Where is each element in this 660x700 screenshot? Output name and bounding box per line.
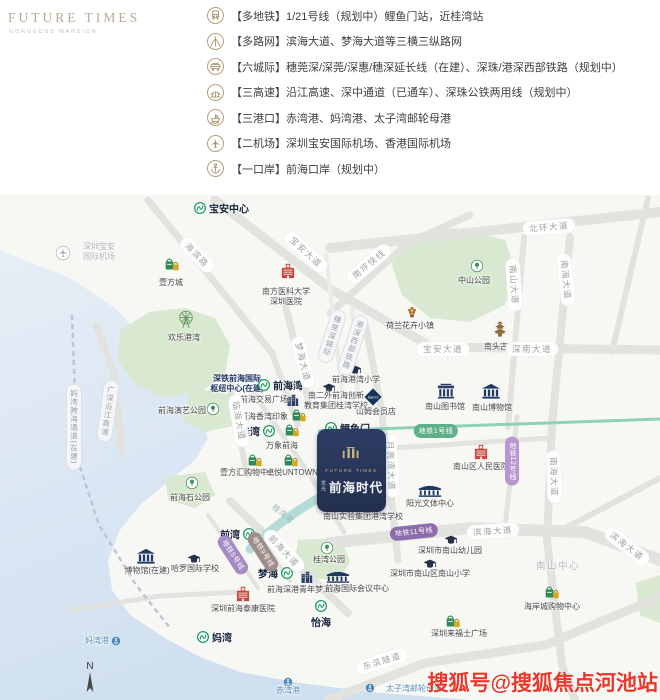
- legend: 【多地铁】1/21号线（规划中）鲤鱼门站，近桂湾站【多路网】滨海大道、梦海大道等…: [207, 7, 623, 177]
- port-icon: [207, 109, 224, 126]
- legend-text-1: 【多路网】滨海大道、梦海大道等三横三纵路网: [231, 33, 462, 49]
- legend-text-5: 【二机场】深圳宝安国际机场、香港国际机场: [231, 135, 451, 151]
- legend-text-0: 【多地铁】1/21号线（规划中）鲤鱼门站，近桂湾站: [231, 8, 483, 24]
- project-brand-en: FUTURE TIMES: [325, 468, 377, 473]
- watermark: 搜狐号@搜狐焦点河池站: [428, 667, 658, 697]
- project-prefix: 龙光: [320, 480, 327, 492]
- project-name: 前海时代: [329, 477, 383, 496]
- legend-item-2: 【六城际】穗莞深/深莞/深惠/穗深延长线（在建）、深珠/港深西部铁路（规划中）: [207, 58, 623, 75]
- intercity-rail-icon: [207, 58, 224, 75]
- page: FUTURE TIMES GORGEOUS MANSION 【多地铁】1/21号…: [0, 0, 660, 700]
- legend-item-0: 【多地铁】1/21号线（规划中）鲤鱼门站，近桂湾站: [207, 7, 623, 24]
- legend-text-3: 【三高速】沿江高速、深中通道（已通车）、深珠公铁两用线（规划中）: [231, 84, 578, 100]
- legend-item-5: 【二机场】深圳宝安国际机场、香港国际机场: [207, 135, 623, 152]
- legend-text-4: 【三港口】赤湾港、妈湾港、太子湾邮轮母港: [231, 110, 451, 126]
- airplane-icon: [207, 135, 224, 152]
- anchor-icon: [207, 160, 224, 177]
- brand-subtitle: GORGEOUS MANSION: [8, 29, 140, 35]
- compass-needle-icon: [85, 672, 95, 694]
- compass: N: [82, 662, 98, 697]
- brand-logo: FUTURE TIMES GORGEOUS MANSION: [8, 10, 140, 35]
- legend-text-2: 【六城际】穗莞深/深莞/深惠/穗深延长线（在建）、深珠/港深西部铁路（规划中）: [231, 59, 623, 75]
- compass-n-label: N: [82, 662, 98, 672]
- project-card: FUTURE TIMES 龙光 前海时代: [317, 429, 386, 512]
- highway-icon: [207, 84, 224, 101]
- legend-item-1: 【多路网】滨海大道、梦海大道等三横三纵路网: [207, 33, 623, 50]
- brand-title: FUTURE TIMES: [8, 10, 140, 26]
- legend-item-6: 【一口岸】前海口岸（规划中）: [207, 160, 623, 177]
- road-network-icon: [207, 33, 224, 50]
- train-icon: [207, 7, 224, 24]
- legend-text-6: 【一口岸】前海口岸（规划中）: [231, 161, 385, 177]
- project-emblem-icon: [340, 446, 364, 464]
- legend-item-3: 【三高速】沿江高速、深中通道（已通车）、深珠公铁两用线（规划中）: [207, 84, 623, 101]
- legend-item-4: 【三港口】赤湾港、妈湾港、太子湾邮轮母港: [207, 109, 623, 126]
